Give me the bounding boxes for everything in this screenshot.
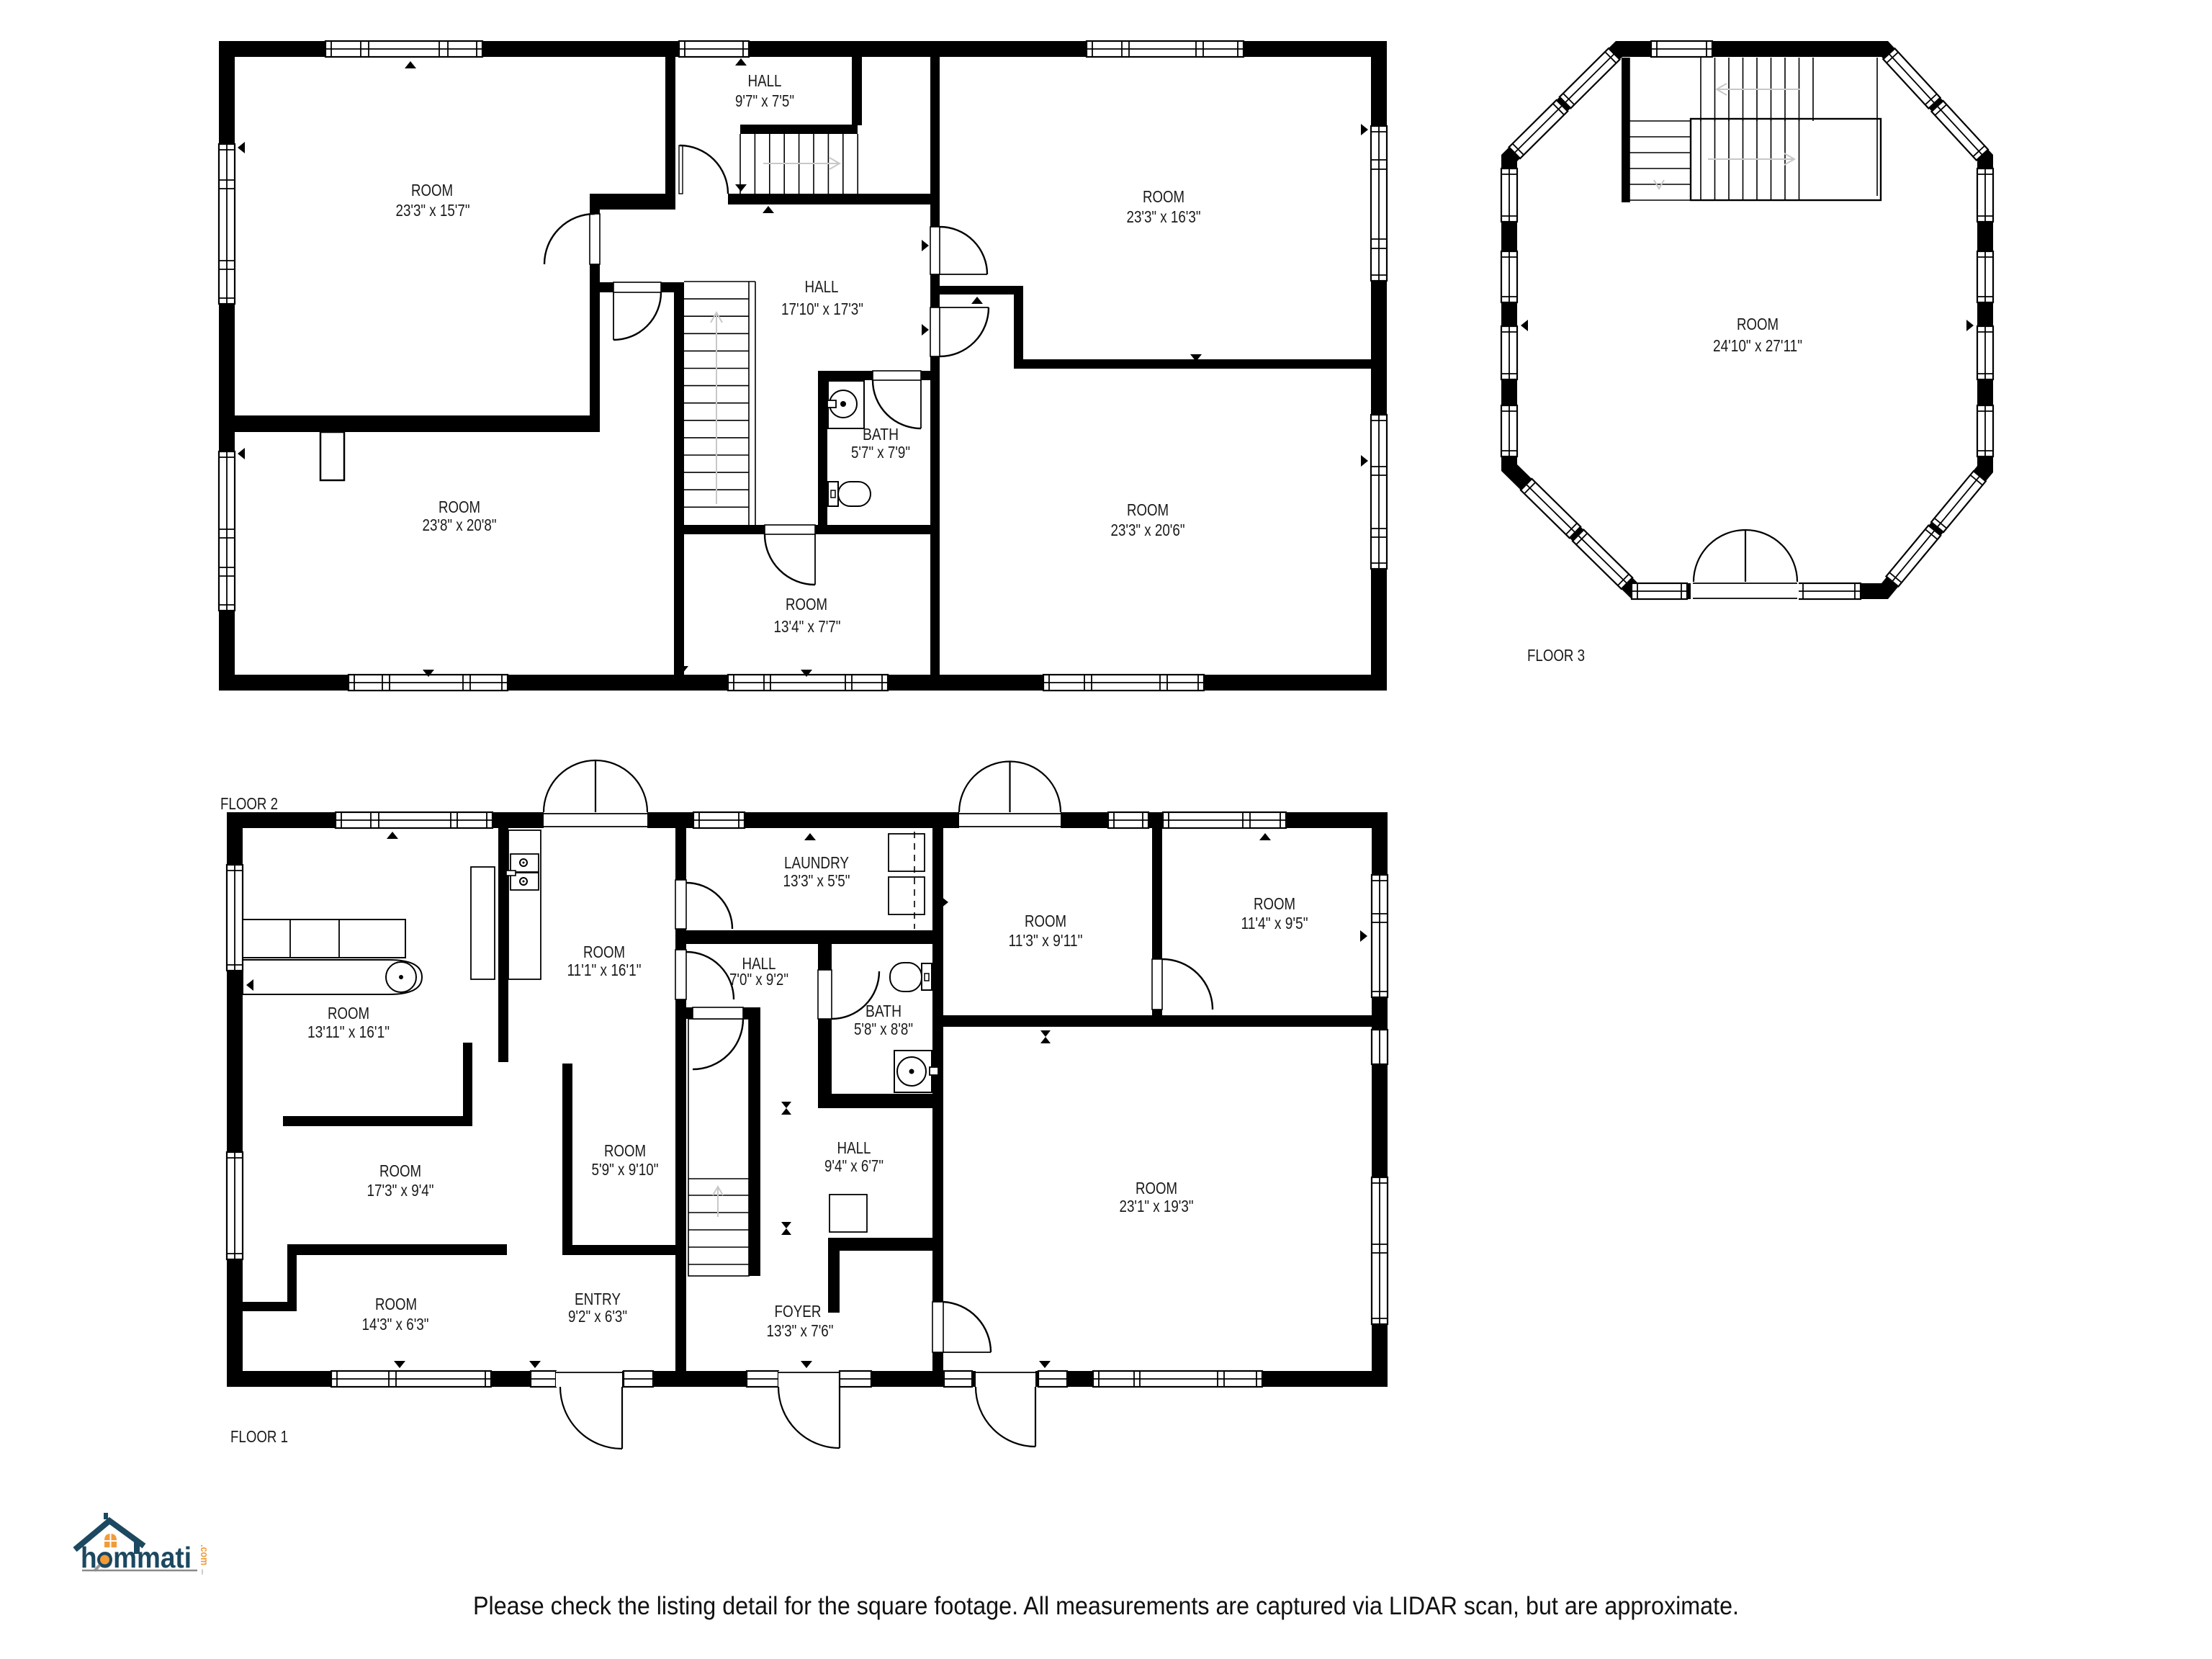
svg-text:23'3" x 15'7": 23'3" x 15'7" bbox=[396, 201, 470, 220]
svg-text:9'2" x 6'3": 9'2" x 6'3" bbox=[568, 1307, 627, 1326]
svg-text:FOYER: FOYER bbox=[775, 1302, 822, 1321]
svg-text:ROOM: ROOM bbox=[1254, 894, 1295, 913]
svg-text:11'3" x 9'11": 11'3" x 9'11" bbox=[1009, 931, 1083, 950]
svg-text:FLOOR 2: FLOOR 2 bbox=[220, 794, 278, 813]
svg-text:FLOOR 3: FLOOR 3 bbox=[1527, 646, 1585, 665]
svg-text:ROOM: ROOM bbox=[583, 943, 625, 961]
svg-text:13'4" x 7'7": 13'4" x 7'7" bbox=[774, 617, 841, 636]
svg-text:HALL: HALL bbox=[748, 71, 782, 90]
svg-text:BATH: BATH bbox=[863, 425, 899, 444]
svg-text:24'10" x 27'11": 24'10" x 27'11" bbox=[1713, 336, 1802, 355]
svg-text:HALL: HALL bbox=[837, 1138, 871, 1157]
svg-text:ROOM: ROOM bbox=[1143, 187, 1184, 206]
svg-text:ENTRY: ENTRY bbox=[575, 1290, 621, 1308]
svg-text:FLOOR 1: FLOOR 1 bbox=[230, 1427, 288, 1446]
svg-text:23'3" x 20'6": 23'3" x 20'6" bbox=[1111, 521, 1185, 539]
svg-text:14'3" x 6'3": 14'3" x 6'3" bbox=[362, 1315, 429, 1334]
svg-text:Please check the listing detai: Please check the listing detail for the … bbox=[473, 1592, 1739, 1620]
svg-text:ROOM: ROOM bbox=[1737, 315, 1779, 333]
svg-text:ROOM: ROOM bbox=[1136, 1179, 1177, 1197]
svg-text:5'7" x 7'9": 5'7" x 7'9" bbox=[851, 443, 910, 462]
svg-text:ROOM: ROOM bbox=[328, 1004, 369, 1022]
svg-text:9'7" x 7'5": 9'7" x 7'5" bbox=[735, 91, 794, 110]
svg-text:13'3" x 7'6": 13'3" x 7'6" bbox=[767, 1321, 834, 1340]
svg-text:HALL: HALL bbox=[805, 277, 839, 296]
svg-text:BATH: BATH bbox=[866, 1002, 902, 1020]
svg-text:17'10" x 17'3": 17'10" x 17'3" bbox=[781, 300, 863, 318]
svg-text:ROOM: ROOM bbox=[439, 498, 480, 516]
svg-text:23'1" x 19'3": 23'1" x 19'3" bbox=[1120, 1197, 1194, 1215]
svg-text:ROOM: ROOM bbox=[411, 181, 453, 199]
svg-text:ROOM: ROOM bbox=[1127, 500, 1169, 519]
svg-text:.com: .com bbox=[198, 1545, 210, 1565]
svg-text:5'8" x 8'8": 5'8" x 8'8" bbox=[854, 1020, 913, 1038]
svg-text:17'3" x 9'4": 17'3" x 9'4" bbox=[367, 1181, 434, 1200]
svg-text:ROOM: ROOM bbox=[375, 1295, 417, 1313]
svg-text:13'11" x 16'1": 13'11" x 16'1" bbox=[307, 1022, 390, 1041]
svg-text:LAUNDRY: LAUNDRY bbox=[784, 853, 849, 872]
svg-text:11'4" x 9'5": 11'4" x 9'5" bbox=[1241, 914, 1308, 932]
svg-text:ROOM: ROOM bbox=[379, 1161, 421, 1180]
svg-text:7'0" x 9'2": 7'0" x 9'2" bbox=[729, 970, 788, 989]
svg-text:13'3" x 5'5": 13'3" x 5'5" bbox=[783, 871, 850, 890]
svg-text:9'4" x 6'7": 9'4" x 6'7" bbox=[824, 1156, 884, 1175]
svg-text:ROOM: ROOM bbox=[1025, 912, 1066, 930]
svg-text:ROOM: ROOM bbox=[786, 595, 827, 613]
svg-text:®: ® bbox=[202, 1568, 203, 1577]
svg-text:23'8" x 20'8": 23'8" x 20'8" bbox=[423, 516, 497, 534]
svg-text:11'1" x 16'1": 11'1" x 16'1" bbox=[567, 961, 642, 979]
svg-text:5'9" x 9'10": 5'9" x 9'10" bbox=[592, 1160, 659, 1179]
svg-text:23'3" x 16'3": 23'3" x 16'3" bbox=[1127, 207, 1201, 226]
svg-text:ROOM: ROOM bbox=[604, 1141, 646, 1160]
